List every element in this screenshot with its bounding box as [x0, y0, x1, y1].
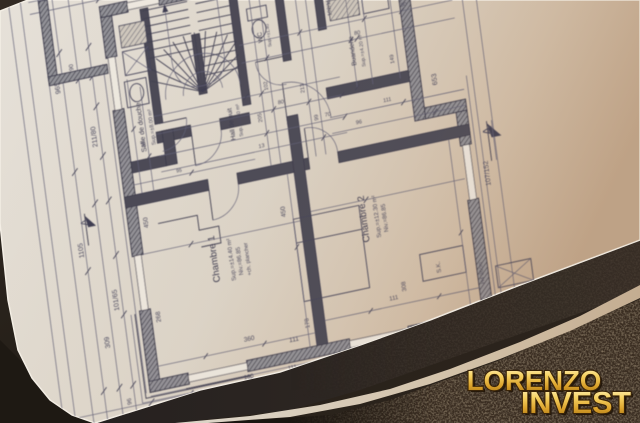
svg-text:INVEST: INVEST [521, 386, 632, 420]
